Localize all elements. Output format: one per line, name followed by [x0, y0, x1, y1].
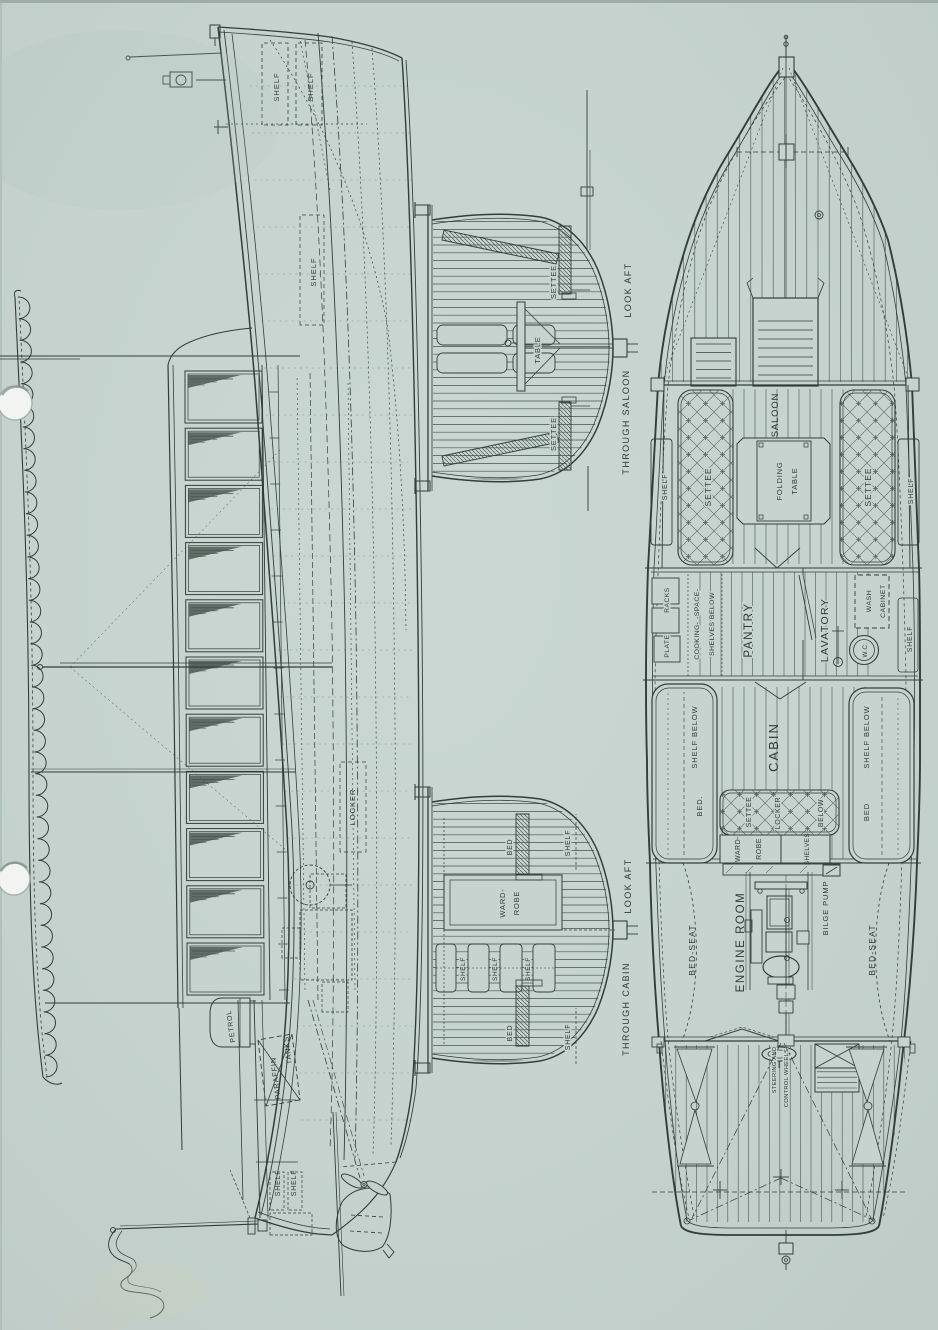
svg-text:LOCKER: LOCKER: [348, 789, 357, 826]
svg-text:SHELF: SHELF: [291, 1170, 298, 1197]
svg-text:SHELF: SHELF: [565, 1024, 572, 1051]
svg-text:SETTEE: SETTEE: [746, 797, 753, 828]
svg-text:TABLE: TABLE: [790, 467, 799, 494]
svg-text:SHELVES: SHELVES: [804, 833, 811, 866]
svg-text:SHELF: SHELF: [662, 474, 669, 501]
svg-text:CONTROL WHEELS: CONTROL WHEELS: [784, 1049, 790, 1107]
svg-text:SHELF: SHELF: [565, 830, 572, 857]
svg-text:WASH: WASH: [866, 590, 873, 613]
svg-text:BED: BED: [507, 1025, 514, 1042]
svg-text:SHELF: SHELF: [460, 957, 467, 981]
svg-text:SHELF: SHELF: [275, 1170, 282, 1197]
svg-text:CABINET: CABINET: [880, 584, 887, 618]
svg-text:LOCKER: LOCKER: [775, 797, 782, 829]
svg-text:THROUGH SALOON: THROUGH SALOON: [621, 369, 631, 474]
svg-text:SHELVES BELOW: SHELVES BELOW: [709, 592, 716, 656]
svg-text:SALOON: SALOON: [770, 393, 781, 437]
svg-text:BED-SEAT: BED-SEAT: [687, 924, 697, 975]
svg-text:STEERING AND: STEERING AND: [772, 1047, 778, 1094]
svg-text:TABLE: TABLE: [533, 336, 542, 363]
svg-text:ROBE: ROBE: [756, 838, 763, 860]
svg-text:SHELF: SHELF: [492, 957, 499, 981]
svg-text:BED: BED: [507, 839, 514, 856]
svg-text:RACKS: RACKS: [664, 587, 671, 612]
svg-text:BED: BED: [862, 803, 871, 821]
svg-text:PANTRY: PANTRY: [743, 602, 755, 657]
svg-text:SETTEE: SETTEE: [703, 467, 713, 506]
svg-text:SHELF BELOW: SHELF BELOW: [690, 705, 699, 768]
svg-text:WARD-: WARD-: [735, 836, 742, 862]
svg-text:SHELF: SHELF: [908, 478, 915, 505]
svg-text:SHELF: SHELF: [309, 257, 318, 286]
svg-text:SETTEE: SETTEE: [549, 417, 558, 451]
svg-text:WARD-: WARD-: [498, 888, 507, 917]
svg-text:BED.: BED.: [695, 795, 704, 816]
svg-text:SHELF BELOW: SHELF BELOW: [862, 705, 871, 768]
svg-text:W.C.: W.C.: [862, 642, 869, 657]
svg-text:SETTEE: SETTEE: [863, 467, 873, 506]
svg-text:LOOK AFT: LOOK AFT: [623, 858, 633, 913]
svg-text:ROBE: ROBE: [512, 891, 521, 915]
svg-text:COOKING- -SPACE-: COOKING- -SPACE-: [694, 588, 701, 659]
svg-text:SHELF: SHELF: [907, 626, 914, 653]
svg-text:SHELF: SHELF: [525, 957, 532, 981]
svg-text:PLATE: PLATE: [664, 634, 671, 657]
svg-text:ENGINE ROOM: ENGINE ROOM: [735, 892, 747, 993]
svg-text:BELOW: BELOW: [818, 799, 825, 827]
svg-text:LAVATORY: LAVATORY: [819, 598, 831, 663]
svg-text:FOLDING: FOLDING: [775, 462, 784, 501]
svg-text:BILGE PUMP: BILGE PUMP: [821, 881, 830, 936]
svg-text:THROUGH CABIN: THROUGH CABIN: [621, 962, 631, 1056]
svg-text:BED-SEAT: BED-SEAT: [867, 924, 877, 975]
svg-text:CABIN: CABIN: [766, 722, 781, 772]
svg-text:LOOK AFT: LOOK AFT: [623, 262, 633, 317]
svg-text:SETTEE: SETTEE: [549, 265, 558, 299]
